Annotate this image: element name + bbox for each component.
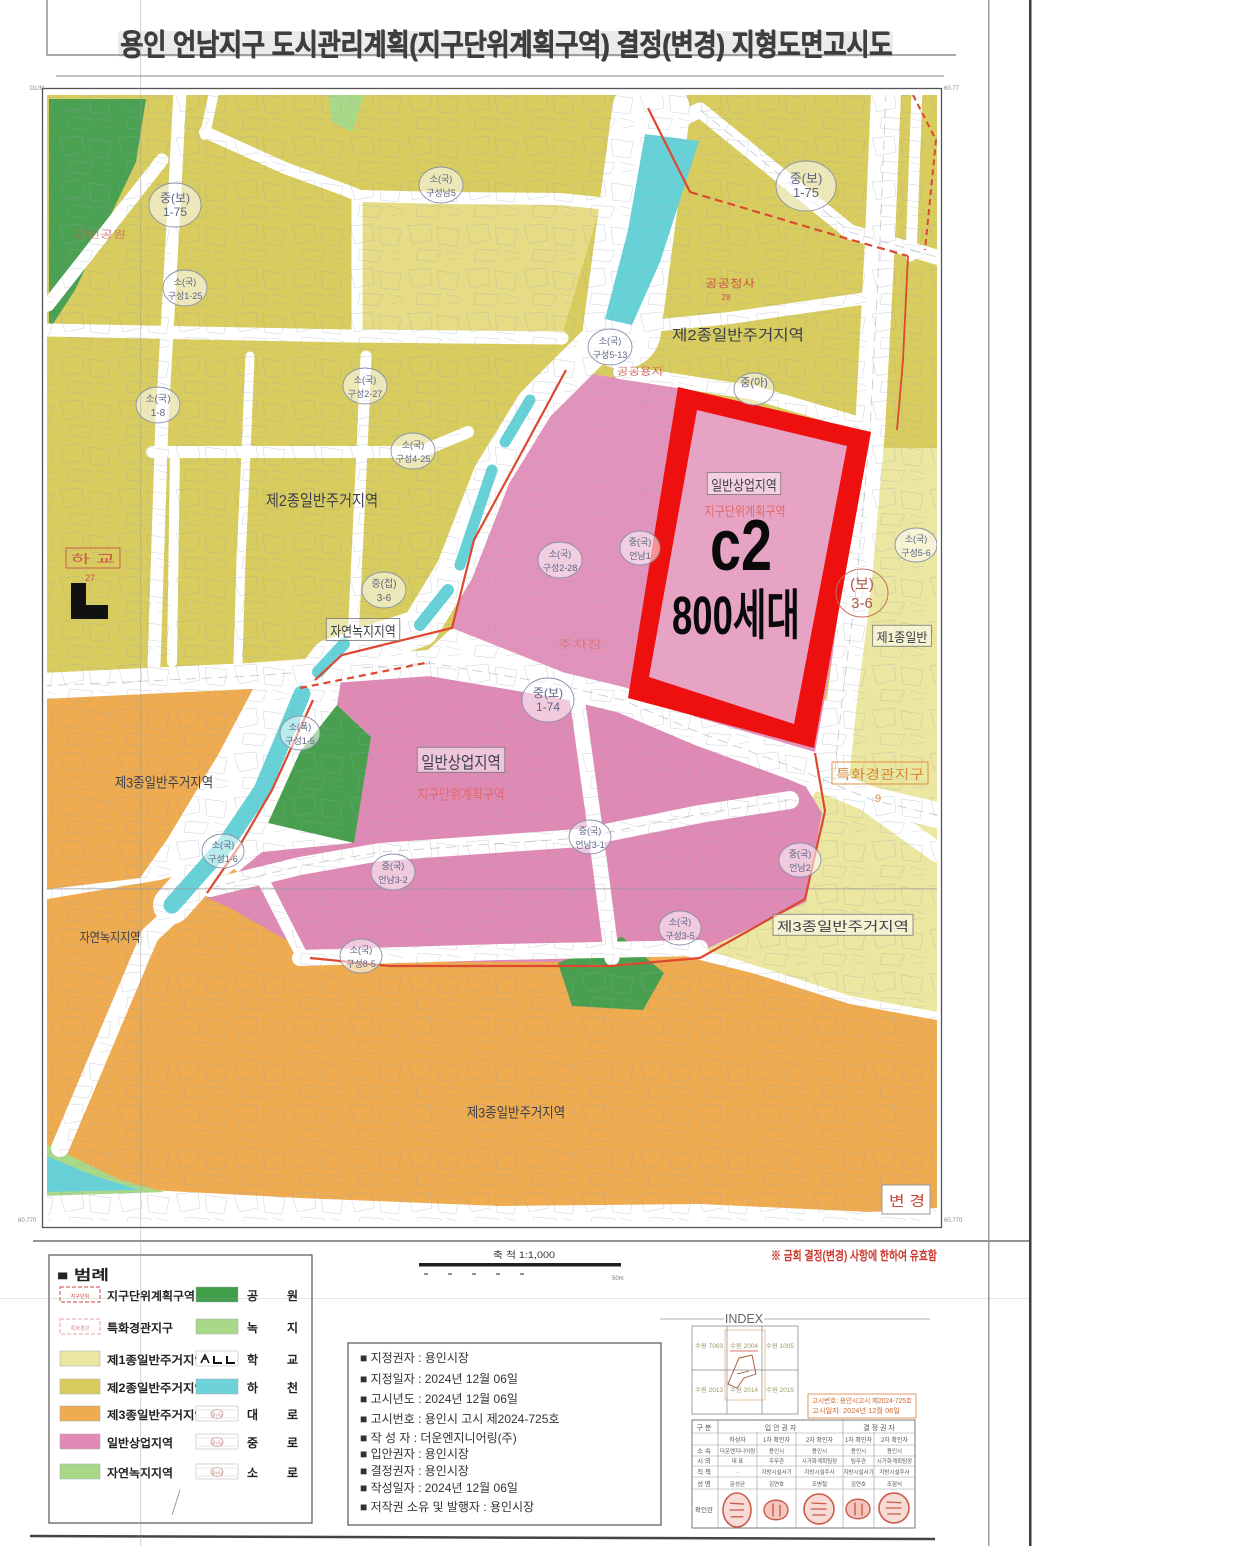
svg-text:수원 2013: 수원 2013 <box>695 1386 724 1394</box>
svg-text:수원 7063: 수원 7063 <box>695 1342 724 1350</box>
svg-text:■ 지정일자 : 2024년 12월 06일: ■ 지정일자 : 2024년 12월 06일 <box>360 1372 518 1386</box>
svg-text:녹: 녹 <box>247 1321 258 1335</box>
svg-text:소(국): 소(국) <box>350 945 373 955</box>
svg-text:입 안 권 자: 입 안 권 자 <box>765 1423 797 1432</box>
svg-text:용인 언남지구 도시관리계획(지구단위계획구역) 결정(변경: 용인 언남지구 도시관리계획(지구단위계획구역) 결정(변경) 지형도면고시도 <box>121 30 893 63</box>
svg-text:1-75: 1-75 <box>163 205 187 219</box>
svg-text:조병철: 조병철 <box>812 1480 827 1488</box>
svg-text:2차 확인자: 2차 확인자 <box>881 1436 909 1444</box>
svg-text:특화경관: 특화경관 <box>71 1325 90 1332</box>
svg-text:DL/M: DL/M <box>30 86 44 92</box>
svg-text:공공용지: 공공용지 <box>617 366 663 378</box>
svg-text:구성2-28: 구성2-28 <box>543 563 578 573</box>
svg-text:지구단위계획구역: 지구단위계획구역 <box>417 786 504 802</box>
svg-text:60.770: 60.770 <box>944 1218 963 1224</box>
svg-text:김연호: 김연호 <box>769 1480 784 1488</box>
svg-text:제1종일반: 제1종일반 <box>877 630 928 645</box>
svg-text:소(국): 소(국) <box>599 336 622 346</box>
svg-text:구성8-5: 구성8-5 <box>346 959 376 969</box>
svg-text:중: 중 <box>247 1436 258 1450</box>
svg-text:수원 2004: 수원 2004 <box>730 1342 759 1350</box>
svg-text:지방시설주사: 지방시설주사 <box>879 1468 909 1476</box>
svg-text:용인시: 용인시 <box>887 1448 902 1455</box>
svg-text:일반상업지역: 일반상업지역 <box>421 753 501 772</box>
svg-text:소(폭): 소(폭) <box>289 722 312 732</box>
svg-text:구성5-6: 구성5-6 <box>901 548 931 558</box>
svg-text:제2종일반주거지역: 제2종일반주거지역 <box>107 1381 206 1395</box>
svg-text:60.770: 60.770 <box>18 1218 37 1224</box>
svg-text:소(국): 소(국) <box>145 393 170 405</box>
svg-text:제2종일반주거지역: 제2종일반주거지역 <box>266 492 378 510</box>
svg-text:더운엔지니어링: 더운엔지니어링 <box>720 1447 755 1455</box>
svg-text:■ 작 성 자 : 더운엔지니어링(주): ■ 작 성 자 : 더운엔지니어링(주) <box>360 1431 517 1445</box>
svg-text:언남3-2: 언남3-2 <box>378 874 408 885</box>
svg-text:중(국): 중(국) <box>212 1470 223 1475</box>
svg-text:지방시설주사: 지방시설주사 <box>804 1468 834 1476</box>
svg-text:■ 입안권자 : 용인시장: ■ 입안권자 : 용인시장 <box>360 1447 469 1461</box>
svg-text:소(국): 소(국) <box>905 534 928 544</box>
svg-text:천: 천 <box>287 1380 298 1395</box>
svg-text:중(국): 중(국) <box>382 861 405 871</box>
svg-text:제2종일반주거지역: 제2종일반주거지역 <box>672 327 804 344</box>
svg-text:2차 확인자: 2차 확인자 <box>806 1436 834 1444</box>
svg-text:구성남5: 구성남5 <box>426 188 456 198</box>
svg-text:소(국): 소(국) <box>212 840 235 850</box>
svg-text:공: 공 <box>247 1289 258 1303</box>
svg-text:지방시설서기: 지방시설서기 <box>761 1468 791 1476</box>
svg-text:하: 하 <box>247 1380 258 1395</box>
svg-text:수원 1005: 수원 1005 <box>766 1342 795 1350</box>
svg-text:용인시: 용인시 <box>769 1448 784 1455</box>
svg-text:대 표: 대 표 <box>732 1457 744 1465</box>
svg-text:고시번호: 용인시고시 제2024-725호: 고시번호: 용인시고시 제2024-725호 <box>812 1396 913 1405</box>
svg-text:구성4-25: 구성4-25 <box>396 454 431 464</box>
svg-text:용인시: 용인시 <box>812 1448 827 1455</box>
svg-text:성 명: 성 명 <box>697 1479 711 1488</box>
svg-text:용인시: 용인시 <box>851 1448 866 1455</box>
svg-text:팀무관: 팀무관 <box>851 1457 866 1465</box>
svg-text:결 정 권 자: 결 정 권 자 <box>863 1423 895 1432</box>
svg-text:28: 28 <box>722 293 731 302</box>
svg-text:확인란: 확인란 <box>695 1505 713 1514</box>
svg-text:구 분: 구 분 <box>697 1424 712 1432</box>
svg-text:시가화계획팀장: 시가화계획팀장 <box>877 1457 912 1465</box>
svg-text:중(국): 중(국) <box>629 537 652 547</box>
svg-text:■ 지정권자 : 용인시장: ■ 지정권자 : 용인시장 <box>360 1351 469 1365</box>
svg-text:하 교: 하 교 <box>71 552 115 566</box>
svg-text:소: 소 <box>247 1466 258 1480</box>
svg-text:자연녹지지역: 자연녹지지역 <box>330 623 396 639</box>
svg-text:제3종일반주거지역: 제3종일반주거지역 <box>777 919 909 934</box>
svg-text:학: 학 <box>247 1352 258 1367</box>
svg-text:특화경관지구: 특화경관지구 <box>836 767 924 782</box>
svg-text:구성3-5: 구성3-5 <box>665 931 695 941</box>
svg-text:■ 저작권 소유 및 발행자 : 용인시장: ■ 저작권 소유 및 발행자 : 용인시장 <box>360 1499 534 1514</box>
svg-text:제3종일반주거지역: 제3종일반주거지역 <box>467 1104 565 1120</box>
svg-text:c2: c2 <box>710 506 772 586</box>
svg-text:문성균: 문성균 <box>730 1480 745 1488</box>
svg-text:800세대: 800세대 <box>672 586 800 646</box>
svg-text:언남3-1: 언남3-1 <box>575 839 605 850</box>
svg-text:김연호: 김연호 <box>851 1480 866 1488</box>
svg-text:1차 확인자: 1차 확인자 <box>845 1436 873 1444</box>
svg-text:60.77: 60.77 <box>944 86 960 92</box>
svg-text:자연녹지지역: 자연녹지지역 <box>80 930 141 945</box>
svg-text:원: 원 <box>287 1289 298 1303</box>
svg-text:시 외: 시 외 <box>697 1457 711 1465</box>
svg-text:구성1-5: 구성1-5 <box>285 736 315 746</box>
svg-text:■ 결정권자 : 용인시장: ■ 결정권자 : 용인시장 <box>360 1464 469 1478</box>
svg-text:소(국): 소(국) <box>354 375 377 385</box>
svg-text:구성2-27: 구성2-27 <box>348 389 383 399</box>
svg-text:소(국): 소(국) <box>549 549 572 559</box>
svg-text:INDEX: INDEX <box>725 1312 764 1326</box>
svg-text:중(국): 중(국) <box>579 826 602 836</box>
svg-text:시가화계획팀장: 시가화계획팀장 <box>802 1457 837 1465</box>
svg-text:1-8: 1-8 <box>151 408 166 419</box>
svg-text:지방시설서기: 지방시설서기 <box>843 1468 873 1476</box>
svg-text:1차 확인자: 1차 확인자 <box>763 1436 791 1444</box>
svg-text:■ 범례: ■ 범례 <box>57 1267 109 1283</box>
svg-text:근린공원: 근린공원 <box>74 229 126 241</box>
svg-text:소(국): 소(국) <box>174 277 197 287</box>
svg-text:언남2: 언남2 <box>789 862 811 873</box>
svg-text:■ 작성일자 : 2024년 12월 06일: ■ 작성일자 : 2024년 12월 06일 <box>360 1481 518 1495</box>
svg-text:구성1-25: 구성1-25 <box>168 291 203 301</box>
svg-text:조형식: 조형식 <box>887 1480 902 1488</box>
svg-text:주차장: 주차장 <box>558 638 602 651</box>
svg-text:50m: 50m <box>612 1276 624 1282</box>
svg-text:주무관: 주무관 <box>769 1457 784 1465</box>
svg-text:축 척 1:1,000: 축 척 1:1,000 <box>493 1250 555 1260</box>
svg-text:1-74: 1-74 <box>536 700 560 714</box>
svg-text:9: 9 <box>875 793 881 805</box>
svg-text:■ 고시년도 : 2024년 12월 06일: ■ 고시년도 : 2024년 12월 06일 <box>360 1392 518 1406</box>
svg-text:언남1: 언남1 <box>629 550 651 561</box>
svg-text:소(국): 소(국) <box>402 440 425 450</box>
svg-text:중(보): 중(보) <box>160 191 190 205</box>
svg-text:3-6: 3-6 <box>851 595 873 612</box>
svg-text:중(보): 중(보) <box>790 171 823 186</box>
svg-text:수원 2015: 수원 2015 <box>766 1386 795 1394</box>
svg-text:제3종일반주거지역: 제3종일반주거지역 <box>115 774 213 790</box>
svg-text:제1종일반주거지역: 제1종일반주거지역 <box>107 1353 206 1367</box>
svg-text:소(국): 소(국) <box>430 174 453 184</box>
svg-text:중(아): 중(아) <box>740 376 768 389</box>
svg-text:로: 로 <box>287 1466 298 1480</box>
svg-text:교: 교 <box>287 1353 298 1367</box>
svg-text:27: 27 <box>85 573 95 583</box>
svg-text:공공청사: 공공청사 <box>705 277 755 290</box>
svg-text:중(접): 중(접) <box>371 578 396 590</box>
svg-text:로: 로 <box>287 1436 298 1450</box>
svg-text:중(국): 중(국) <box>789 849 812 859</box>
svg-text:중(국): 중(국) <box>212 1440 223 1445</box>
svg-text:3-6: 3-6 <box>377 593 392 604</box>
svg-text:중(국): 중(국) <box>212 1412 223 1417</box>
svg-text:제3종일반주거지역: 제3종일반주거지역 <box>107 1408 206 1422</box>
svg-text:작성자: 작성자 <box>729 1436 746 1444</box>
svg-text:지구단위계획구역: 지구단위계획구역 <box>107 1289 195 1303</box>
svg-text:1-75: 1-75 <box>793 185 819 200</box>
svg-text:로: 로 <box>287 1408 298 1422</box>
svg-text:일반상업지역: 일반상업지역 <box>711 477 777 493</box>
svg-text:구성5-13: 구성5-13 <box>593 350 628 360</box>
svg-text:지: 지 <box>287 1320 298 1335</box>
svg-text:대: 대 <box>247 1408 258 1422</box>
svg-text:소(국): 소(국) <box>669 917 692 927</box>
svg-text:고시일자: 2024년 12월 06일: 고시일자: 2024년 12월 06일 <box>812 1406 900 1415</box>
svg-text:변 경: 변 경 <box>889 1193 925 1209</box>
svg-text:소 속: 소 속 <box>697 1447 711 1455</box>
svg-text:-: - <box>737 1470 739 1476</box>
svg-text:구성1-6: 구성1-6 <box>208 854 238 864</box>
svg-text:(보): (보) <box>850 576 874 593</box>
svg-text:직 책: 직 책 <box>697 1467 711 1476</box>
svg-text:■ 고시번호 : 용인시 고시 제2024-725호: ■ 고시번호 : 용인시 고시 제2024-725호 <box>360 1412 559 1426</box>
svg-text:※ 금회 결정(변경) 사항에 한하여 유효함: ※ 금회 결정(변경) 사항에 한하여 유효함 <box>771 1248 937 1263</box>
svg-text:중(보): 중(보) <box>533 686 563 700</box>
